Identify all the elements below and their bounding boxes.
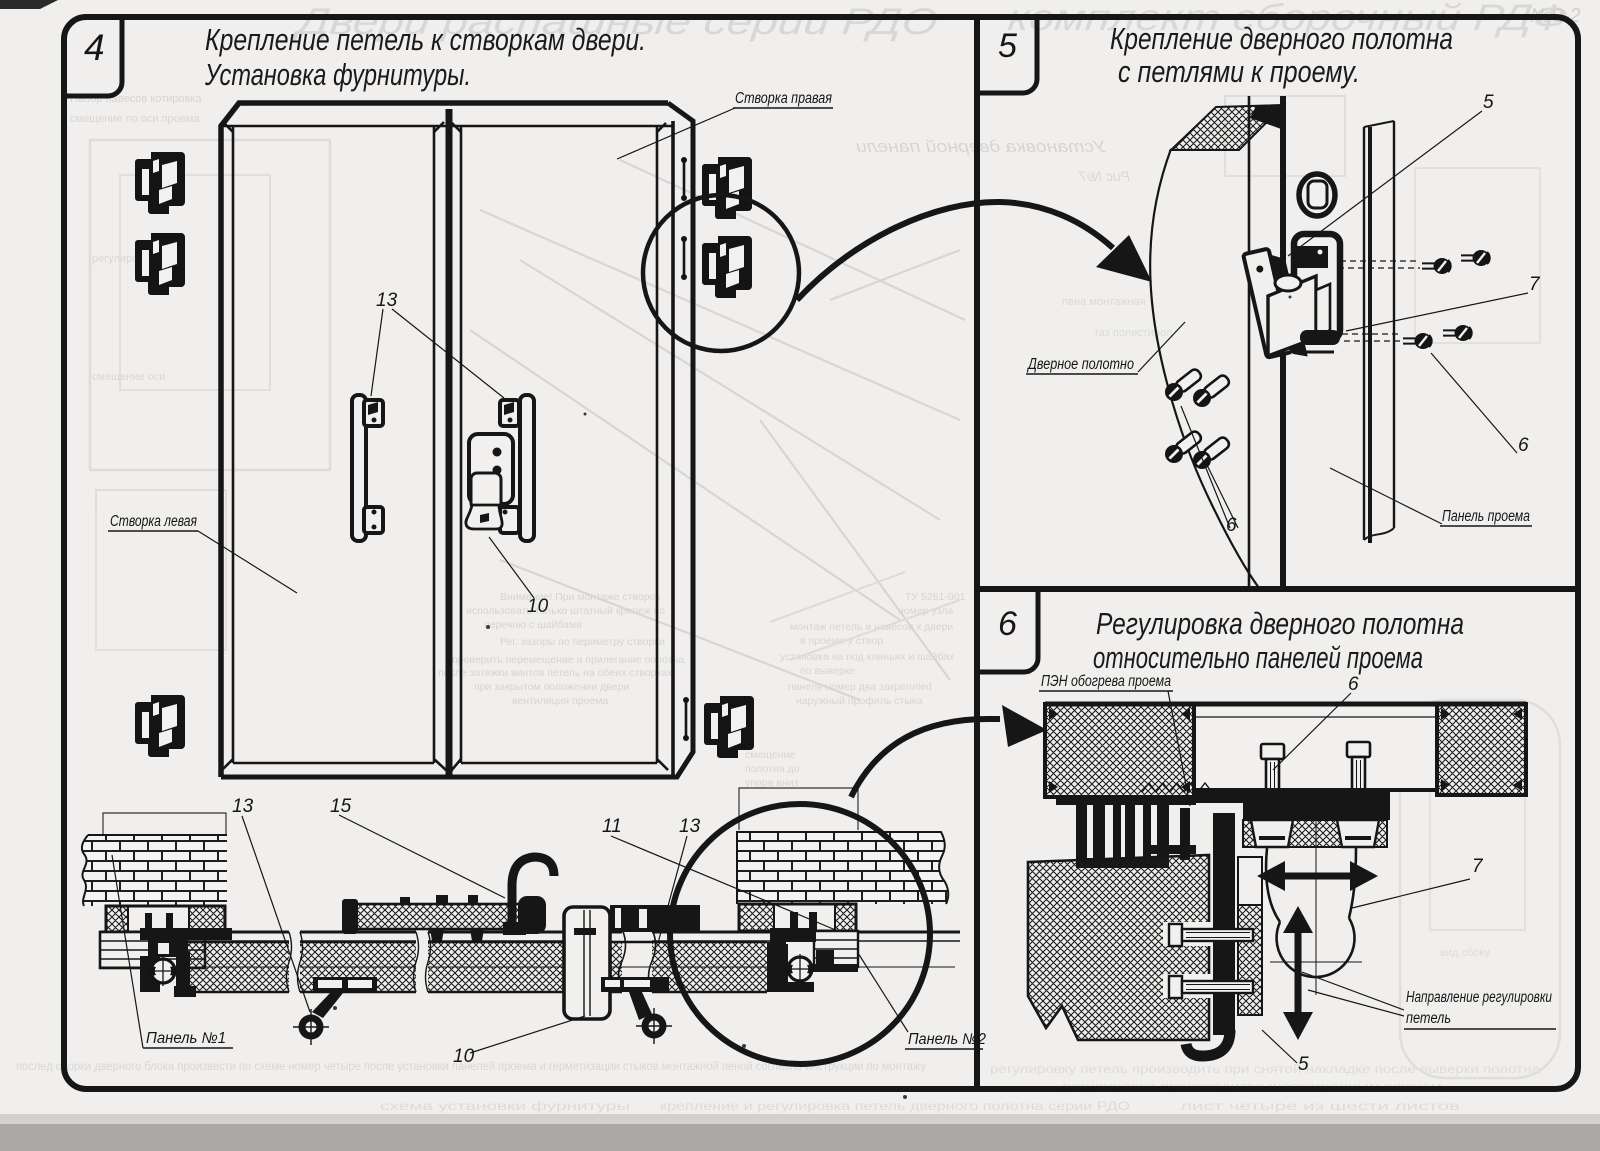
svg-text:по выверке: по выверке <box>800 665 855 677</box>
svg-text:Створка правая: Створка правая <box>735 90 832 107</box>
svg-text:использовать только штатный кр: использовать только штатный крепеж по <box>466 605 665 617</box>
svg-text:лист четыре из шести листов: лист четыре из шести листов <box>1180 1101 1460 1113</box>
svg-text:вентиляция проема: вентиляция проема <box>512 695 608 707</box>
svg-text:6: 6 <box>998 605 1017 643</box>
svg-text:Рис №7: Рис №7 <box>1078 168 1130 184</box>
svg-text:полотна до: полотна до <box>745 763 800 775</box>
svg-text:смещение по оси проема: смещение по оси проема <box>70 113 200 125</box>
svg-text:Направление регулировки: Направление регулировки <box>1406 989 1552 1006</box>
svg-text:смещение: смещение <box>745 749 795 761</box>
svg-text:Створка левая: Створка левая <box>110 513 197 530</box>
svg-text:11: 11 <box>602 816 622 837</box>
svg-text:Регулировка дверного полотна: Регулировка дверного полотна <box>1096 606 1464 641</box>
svg-text:крепление и регулировка петель: крепление и регулировка петель дверного … <box>660 1101 1130 1113</box>
svg-text:7: 7 <box>1472 856 1484 877</box>
svg-text:Крепление петель к створкам дв: Крепление петель к створкам двери. <box>205 22 646 57</box>
svg-text:Панель проема: Панель проема <box>1442 508 1530 525</box>
svg-text:Внимание! При монтаже створок: Внимание! При монтаже створок <box>500 591 660 603</box>
svg-text:пена монтажная: пена монтажная <box>1062 296 1146 308</box>
svg-text:Дверное полотно: Дверное полотно <box>1026 356 1134 373</box>
svg-text:13: 13 <box>232 796 254 817</box>
svg-text:относительно панелей проема: относительно панелей проема <box>1093 640 1423 675</box>
svg-text:5: 5 <box>1298 1054 1309 1075</box>
svg-text:5: 5 <box>998 27 1017 65</box>
svg-text:5: 5 <box>1483 92 1494 113</box>
svg-text:газ полистирол: газ полистирол <box>1095 327 1172 339</box>
svg-text:Крепление дверного полотна: Крепление дверного полотна <box>1110 21 1453 56</box>
svg-text:Установка дверной панели: Установка дверной панели <box>855 137 1107 156</box>
svg-text:панель номер два закреплled: панель номер два закреплled <box>788 681 932 693</box>
svg-text:10: 10 <box>527 596 549 617</box>
svg-text:перечню с шайбами: перечню с шайбами <box>484 619 582 631</box>
svg-text:проверить перемещение и прилег: проверить перемещение и прилегание полот… <box>452 654 684 666</box>
svg-text:6: 6 <box>1348 674 1359 695</box>
svg-text:7: 7 <box>1529 274 1541 295</box>
svg-text:4: 4 <box>84 27 105 68</box>
svg-text:Установка фурнитуры.: Установка фурнитуры. <box>204 57 471 92</box>
svg-text:Панель №1: Панель №1 <box>146 1030 226 1047</box>
svg-text:13: 13 <box>679 816 701 837</box>
svg-text:15: 15 <box>330 796 352 817</box>
svg-text:смещение оси: смещение оси <box>92 371 165 383</box>
svg-text:при закрытом положении двери: при закрытом положении двери <box>474 681 629 693</box>
svg-text:наружный профиль стыка: наружный профиль стыка <box>796 695 923 707</box>
svg-text:упора вниз: упора вниз <box>745 777 799 789</box>
svg-text:6: 6 <box>1518 435 1529 456</box>
svg-text:6: 6 <box>1226 515 1237 536</box>
svg-text:10: 10 <box>453 1046 475 1067</box>
svg-text:Рег. зазоры по периметру створ: Рег. зазоры по периметру створки <box>500 636 665 648</box>
svg-text:13: 13 <box>376 290 398 311</box>
svg-text:Панель №2: Панель №2 <box>908 1031 986 1048</box>
svg-text:ПЭН обогрева проема: ПЭН обогрева проема <box>1041 673 1171 690</box>
svg-text:после затяжки винтов петель на: после затяжки винтов петель на обеих ств… <box>438 667 673 679</box>
svg-text:установка на под клиньях и шай: установка на под клиньях и шайбах <box>780 651 955 663</box>
svg-text:вид сбоку: вид сбоку <box>1440 947 1490 959</box>
svg-text:петель: петель <box>1406 1010 1451 1027</box>
svg-text:с петлями к проему.: с петлями к проему. <box>1118 54 1360 89</box>
svg-text:регулировку петель производить: регулировку петель производить при снято… <box>990 1064 1541 1076</box>
svg-text:схема установки фурнитуры: схема установки фурнитуры <box>380 1101 630 1113</box>
svg-text:номер узла: номер узла <box>898 605 954 617</box>
